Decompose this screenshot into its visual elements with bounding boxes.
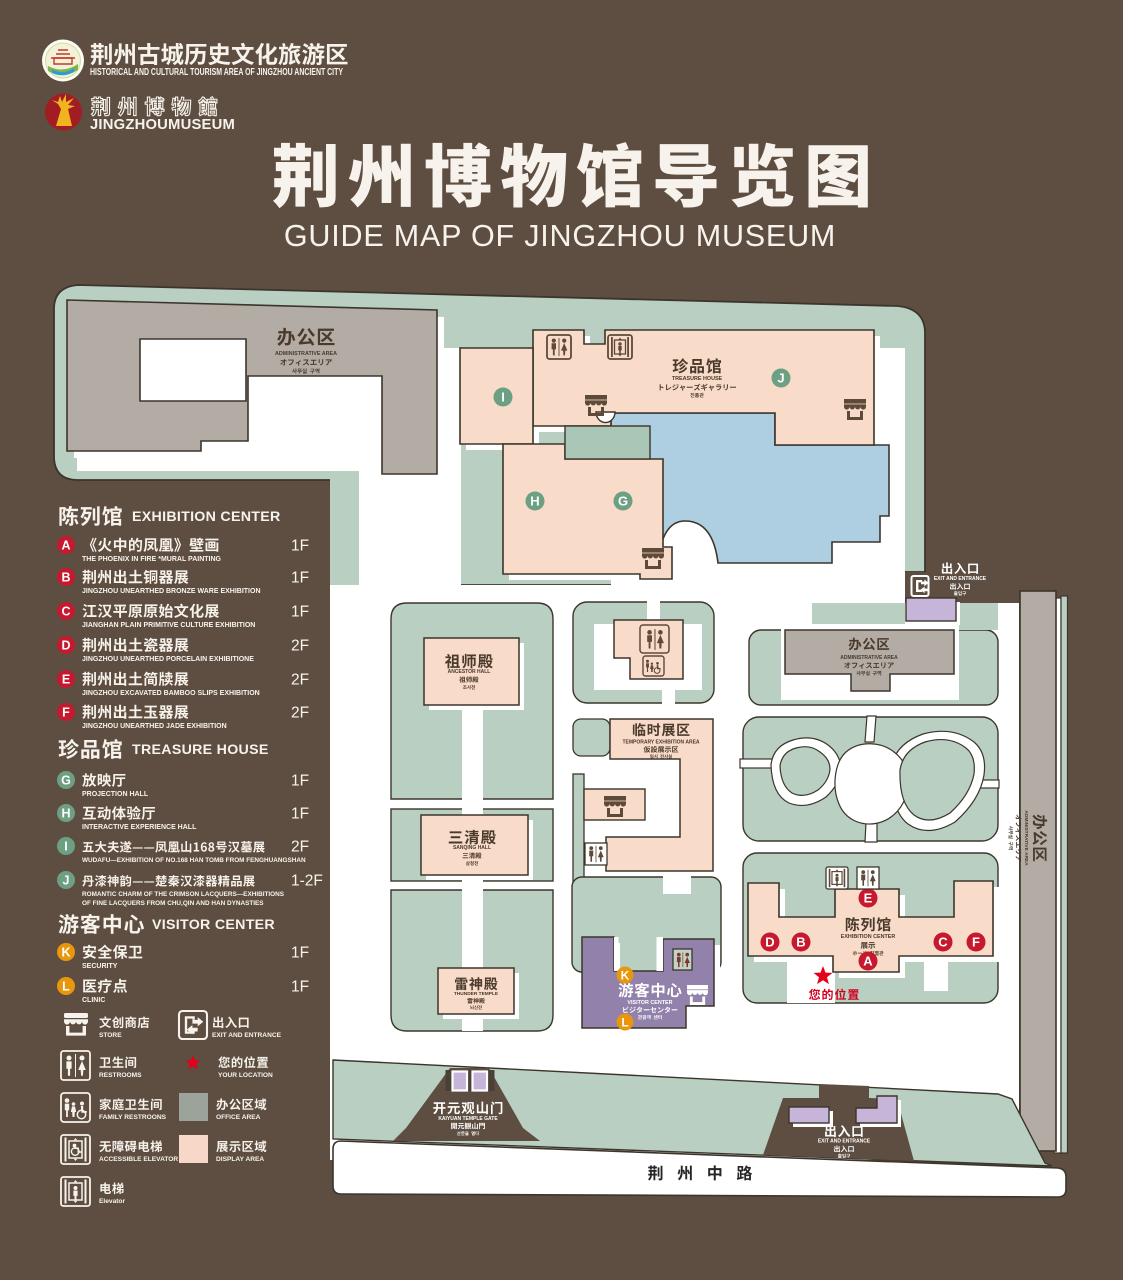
svg-text:I: I — [64, 840, 67, 854]
svg-text:ADMINISTRATIVE AREA: ADMINISTRATIVE AREA — [275, 351, 337, 357]
svg-text:VISITOR CENTER: VISITOR CENTER — [152, 917, 275, 933]
svg-text:PROJECTION HALL: PROJECTION HALL — [82, 791, 149, 798]
svg-text:G: G — [61, 774, 71, 788]
svg-text:STORE: STORE — [99, 1032, 122, 1039]
svg-text:1F: 1F — [291, 979, 309, 996]
svg-text:OF FINE LACQUERS FROM CHU,QIN: OF FINE LACQUERS FROM CHU,QIN AND HAN DY… — [82, 900, 264, 907]
svg-text:A: A — [863, 954, 873, 969]
svg-text:TREASURE HOUSE: TREASURE HOUSE — [132, 742, 269, 758]
svg-text:CLINIC: CLINIC — [82, 997, 105, 1004]
svg-text:H: H — [530, 494, 539, 509]
svg-text:JINGZHOU UNEARTHED BRONZE WARE: JINGZHOU UNEARTHED BRONZE WARE EXHIBITIO… — [82, 588, 261, 595]
svg-text:2F: 2F — [291, 705, 309, 722]
svg-text:GUIDE MAP OF JINGZHOU MUSEUM: GUIDE MAP OF JINGZHOU MUSEUM — [284, 219, 836, 253]
svg-text:THUNDER TEMPLE: THUNDER TEMPLE — [454, 991, 499, 997]
svg-text:I: I — [501, 390, 505, 405]
svg-text:WUDAFU—EXHIBITION OF NO.168 HA: WUDAFU—EXHIBITION OF NO.168 HAN TOMB FRO… — [82, 857, 306, 864]
svg-text:ADMINISTRATIVE AREA: ADMINISTRATIVE AREA — [1023, 810, 1029, 866]
svg-text:JIANGHAN PLAIN PRIMITIVE CULTU: JIANGHAN PLAIN PRIMITIVE CULTURE EXHIBIT… — [82, 622, 255, 629]
svg-text:ADMINISTRATIVE AREA: ADMINISTRATIVE AREA — [840, 655, 898, 661]
svg-text:1-2F: 1-2F — [291, 873, 323, 890]
svg-text:VISITOR CENTER: VISITOR CENTER — [627, 1000, 672, 1006]
svg-text:D: D — [61, 639, 70, 653]
svg-text:E: E — [864, 891, 873, 906]
svg-text:F: F — [62, 706, 70, 720]
svg-text:RESTROOMS: RESTROOMS — [99, 1072, 142, 1079]
svg-text:SECURITY: SECURITY — [82, 963, 118, 970]
svg-text:J: J — [777, 371, 784, 386]
svg-text:A: A — [61, 539, 70, 553]
svg-text:KAIYUAN TEMPLE GATE: KAIYUAN TEMPLE GATE — [438, 1116, 498, 1122]
svg-text:F: F — [972, 935, 980, 950]
svg-text:YOUR LOCATION: YOUR LOCATION — [218, 1072, 273, 1079]
svg-text:2F: 2F — [291, 672, 309, 689]
svg-text:TEMPORARY EXHIBITION AREA: TEMPORARY EXHIBITION AREA — [622, 740, 699, 746]
svg-text:EXIT AND ENTRANCE: EXIT AND ENTRANCE — [818, 1139, 871, 1145]
svg-text:JINGZHOUMUSEUM: JINGZHOUMUSEUM — [90, 117, 235, 133]
svg-text:K: K — [61, 946, 70, 960]
svg-text:H: H — [61, 807, 70, 821]
svg-text:1F: 1F — [291, 806, 309, 823]
svg-text:EXHIBITION CENTER: EXHIBITION CENTER — [841, 934, 896, 940]
svg-text:THE PHOENIX IN FIRE *MURAL PAI: THE PHOENIX IN FIRE *MURAL PAINTING — [82, 556, 222, 563]
svg-text:ROMANTIC CHARM OF THE CRIMSON: ROMANTIC CHARM OF THE CRIMSON LACQUERS—E… — [82, 891, 285, 898]
svg-text:EXHIBITION CENTER: EXHIBITION CENTER — [132, 509, 281, 525]
svg-text:D: D — [765, 935, 774, 950]
svg-text:OFFICE AREA: OFFICE AREA — [216, 1114, 261, 1121]
svg-text:1F: 1F — [291, 604, 309, 621]
svg-text:C: C — [61, 605, 70, 619]
svg-text:1F: 1F — [291, 945, 309, 962]
svg-text:JINGZHOU EXCAVATED BAMBOO SLIP: JINGZHOU EXCAVATED BAMBOO SLIPS EXHIBITI… — [82, 690, 260, 697]
svg-text:FAMILY RESTROONS: FAMILY RESTROONS — [99, 1114, 167, 1121]
svg-text:DISPLAY AREA: DISPLAY AREA — [216, 1156, 264, 1163]
svg-text:EXIT AND ENTRANCE: EXIT AND ENTRANCE — [212, 1032, 282, 1039]
svg-text:B: B — [796, 935, 805, 950]
svg-text:JINGZHOU UNEARTHED JADE EXHIBI: JINGZHOU UNEARTHED JADE EXHIBITION — [82, 723, 227, 730]
svg-text:K: K — [621, 968, 630, 982]
svg-text:C: C — [938, 935, 948, 950]
svg-text:L: L — [621, 1015, 628, 1029]
svg-text:TREASURE HOUSE: TREASURE HOUSE — [672, 376, 723, 382]
svg-text:E: E — [62, 673, 70, 687]
svg-text:ACCESSIBLE ELEVATOR: ACCESSIBLE ELEVATOR — [99, 1156, 178, 1163]
svg-text:1F: 1F — [291, 773, 309, 790]
svg-text:EXIT AND ENTRANCE: EXIT AND ENTRANCE — [934, 576, 987, 582]
svg-text:ANCESTOR HALL: ANCESTOR HALL — [448, 669, 491, 675]
svg-text:1F: 1F — [291, 570, 309, 587]
svg-text:1F: 1F — [291, 538, 309, 555]
svg-text:G: G — [618, 494, 628, 509]
svg-text:Elevator: Elevator — [99, 1198, 125, 1205]
svg-text:JINGZHOU UNEARTHED PORCELAIN E: JINGZHOU UNEARTHED PORCELAIN EXHIBITIONE — [82, 656, 254, 663]
svg-text:B: B — [61, 571, 70, 585]
svg-text:HISTORICAL AND CULTURAL TOURIS: HISTORICAL AND CULTURAL TOURISM AREA OF … — [90, 67, 343, 78]
svg-text:J: J — [63, 874, 70, 888]
svg-text:SANQING HALL: SANQING HALL — [453, 845, 491, 851]
svg-text:INTERACTIVE EXPERIENCE HALL: INTERACTIVE EXPERIENCE HALL — [82, 824, 197, 831]
svg-text:L: L — [62, 980, 70, 994]
svg-text:2F: 2F — [291, 839, 309, 856]
svg-text:2F: 2F — [291, 638, 309, 655]
